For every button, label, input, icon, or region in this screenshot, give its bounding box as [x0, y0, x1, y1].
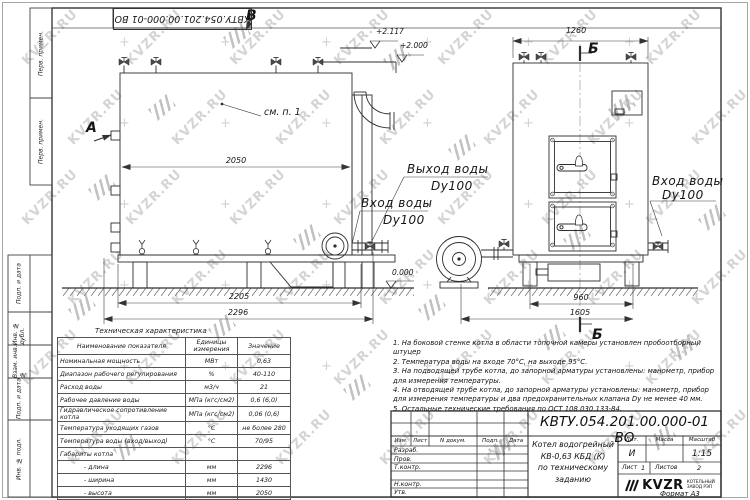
- row-value: 0,63: [238, 355, 291, 368]
- sig-tkontr: Т.контр.: [394, 464, 421, 471]
- row-units: °С: [186, 422, 238, 435]
- lit-header: Лит.: [618, 437, 646, 443]
- table-row: Рабочее давление водыМПа (кгс/см2)0,6 (6…: [58, 394, 291, 407]
- margin-label-perv-primen-2: Перв. примен.: [30, 98, 52, 185]
- water-inlet-left-label: Вход воды: [361, 196, 432, 210]
- product-name-line3: по техническому заданию: [530, 462, 616, 485]
- water-inlet-left-dn: Dy100: [383, 213, 425, 227]
- row-value: 0,06 (0,6): [238, 407, 291, 422]
- row-name: Температура уходящих газов: [58, 422, 186, 435]
- row-units: %: [186, 368, 238, 381]
- row-value: 40-110: [238, 368, 291, 381]
- note-line: 2. Температура воды на входе 70°С, на вы…: [393, 358, 719, 367]
- row-name: - ширина: [58, 474, 186, 487]
- table-row: Расход водым3/ч21: [58, 381, 291, 394]
- section-letter-a: А: [86, 120, 97, 136]
- table-row: Гидравлическое сопротивление котлаМПа (к…: [58, 407, 291, 422]
- row-value: не более 280: [238, 422, 291, 435]
- margin-label-inv-podl: Инв. № подл.: [8, 420, 30, 497]
- corner-designation-box: КВТУ.054.201.00.000-01 ВО: [113, 8, 252, 30]
- note-line: 1. На боковой стенке котла в области топ…: [393, 339, 719, 358]
- row-units: мм: [186, 487, 238, 500]
- table-row: - высотамм2050: [58, 487, 291, 500]
- margin-label-perv-primen-1: Перв. примен.: [30, 8, 52, 98]
- product-name-line1: Котел водогрейный: [530, 439, 616, 451]
- row-units: МПа (кгс/см2): [186, 407, 238, 422]
- table-row: Диапазон рабочего регулирования%40-110: [58, 368, 291, 381]
- dim-1260: 1260: [546, 26, 606, 35]
- row-name: - длина: [58, 461, 186, 474]
- water-inlet-right-dn: Dy100: [662, 188, 704, 202]
- blower-fan: [437, 237, 514, 289]
- water-inlet-right-label: Вход воды: [652, 174, 723, 188]
- sheet-value: 1: [641, 464, 645, 472]
- col-list: Лист: [411, 438, 429, 444]
- row-units: мм: [186, 461, 238, 474]
- note-line: 5. Остальные технические требования по О…: [393, 405, 719, 414]
- dim-2296: 2296: [208, 308, 268, 317]
- row-units: м3/ч: [186, 381, 238, 394]
- table-row: - длинамм2296: [58, 461, 291, 474]
- row-value: 70/95: [238, 435, 291, 448]
- col-name: Наименование показателя: [58, 338, 186, 355]
- table-row: - ширинамм1430: [58, 474, 291, 487]
- col-data: Дата: [504, 438, 528, 444]
- dim-2205: 2205: [209, 292, 269, 301]
- row-value: [238, 448, 291, 461]
- lit-value: И: [618, 449, 646, 459]
- row-units: МПа (кгс/см2): [186, 394, 238, 407]
- sig-nkontr: Н.контр.: [394, 481, 422, 488]
- product-name: Котел водогрейный КВ-0,63 КБД (К) по тех…: [530, 439, 616, 485]
- drawing-sheet: KVZR.RUKVZR.RUKVZR.RUKVZR.RUKVZR.RUKVZR.…: [0, 0, 750, 500]
- scale-header: Масштаб: [683, 437, 721, 443]
- row-name: Рабочее давление воды: [58, 394, 186, 407]
- row-name: Расход воды: [58, 381, 186, 394]
- format-note: Формат А3: [660, 490, 700, 498]
- corner-designation-text: КВТУ.054.201.00.000-01 ВО: [115, 14, 251, 25]
- col-ndokum: N докум.: [429, 438, 477, 444]
- sig-razrab: Разраб.: [394, 447, 418, 454]
- row-value: 2050: [238, 487, 291, 500]
- dim-960: 960: [551, 293, 611, 302]
- col-izm: Изм.: [391, 438, 411, 444]
- scale-value: 1:15: [683, 449, 721, 459]
- sheets-label: Листов: [655, 464, 677, 471]
- section-letter-b-top: Б: [588, 41, 599, 57]
- tech-header-row: Наименование показателя Единицы измерени…: [58, 338, 291, 355]
- row-name: - высота: [58, 487, 186, 500]
- row-units: [186, 448, 238, 461]
- margin-label-podp-data-2: Подп. и дата: [8, 378, 30, 420]
- margin-label-podp-data-1: Подп. и дата: [8, 255, 30, 312]
- row-name: Габариты котла: [58, 448, 186, 461]
- sheets-value: 2: [697, 464, 701, 472]
- row-name: Номинальная мощность: [58, 355, 186, 368]
- margin-label-vzam-inv: Взам. инв. №: [8, 345, 30, 378]
- dim-1605: 1605: [550, 308, 610, 317]
- col-value: Значение: [238, 338, 291, 355]
- technical-notes: 1. На боковой стенке котла в области топ…: [393, 339, 719, 414]
- kvzr-logo-stripes-icon: [624, 479, 639, 492]
- company-name: КОТЕЛЬНЫЙ ЗАВОД РЭП: [687, 481, 715, 491]
- row-value: 0,6 (6,0): [238, 394, 291, 407]
- row-name: Температура воды (вход/выход): [58, 435, 186, 448]
- elevation-zero: 0.000: [392, 268, 413, 277]
- sig-utv: Утв.: [394, 489, 407, 496]
- sig-prov: Пров.: [394, 456, 412, 463]
- row-units: °С: [186, 435, 238, 448]
- row-value: 2296: [238, 461, 291, 474]
- margin-label-inv-dubl: Инв. № дубл.: [8, 312, 30, 345]
- table-row: Габариты котла: [58, 448, 291, 461]
- elevation-2117: +2.117: [376, 27, 404, 36]
- water-outlet-label: Выход воды: [407, 162, 488, 176]
- row-units: мм: [186, 474, 238, 487]
- tech-characteristics: Техническая характеристика Наименование …: [57, 326, 291, 500]
- see-note-callout: см. п. 1: [264, 107, 301, 118]
- col-podp: Подп.: [477, 438, 504, 444]
- sheet-label: Лист: [622, 464, 637, 471]
- row-name: Гидравлическое сопротивление котла: [58, 407, 186, 422]
- product-name-line2: КВ-0,63 КБД (К): [530, 451, 616, 463]
- water-outlet-dn: Dy100: [431, 179, 473, 193]
- note-line: 3. На подводящей трубе котла, до запорно…: [393, 367, 719, 386]
- row-name: Диапазон рабочего регулирования: [58, 368, 186, 381]
- dim-2050: 2050: [206, 156, 266, 165]
- tech-table-title: Техническая характеристика: [95, 326, 291, 335]
- col-units: Единицы измерения: [186, 338, 238, 355]
- elevation-2000: +2.000: [400, 41, 428, 50]
- table-row: Температура воды (вход/выход)°С70/95: [58, 435, 291, 448]
- note-line: 4. На отводящей трубе котла, до запорной…: [393, 386, 719, 405]
- row-value: 21: [238, 381, 291, 394]
- table-row: Номинальная мощностьМВт0,63: [58, 355, 291, 368]
- tech-table: Наименование показателя Единицы измерени…: [57, 337, 291, 500]
- row-units: МВт: [186, 355, 238, 368]
- row-value: 1430: [238, 474, 291, 487]
- table-row: Температура уходящих газов°Сне более 280: [58, 422, 291, 435]
- mass-header: Масса: [646, 437, 683, 443]
